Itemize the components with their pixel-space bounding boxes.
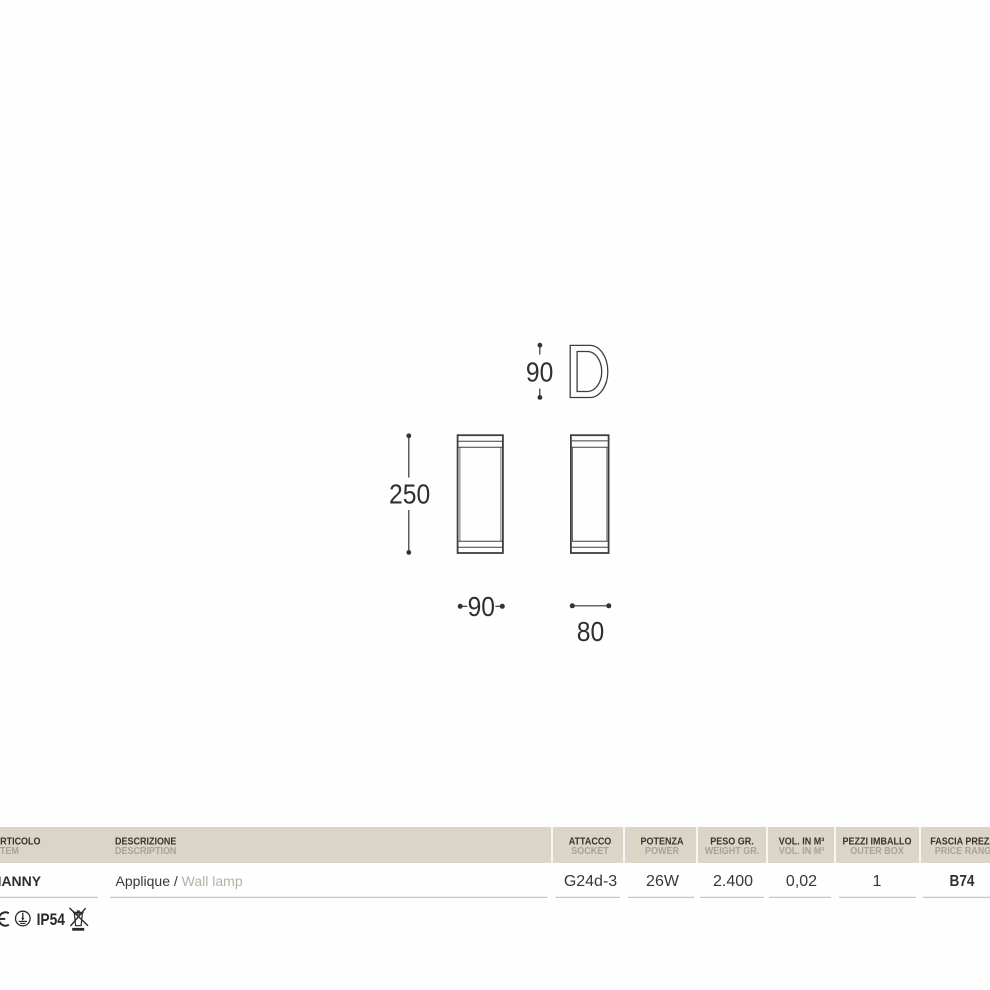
svg-text:Applique / Wall lamp: Applique / Wall lamp [116,873,243,889]
svg-text:VOL. IN M³: VOL. IN M³ [779,846,824,858]
svg-text:26W: 26W [646,873,680,890]
svg-text:OUTER BOX: OUTER BOX [850,846,904,858]
svg-text:0,02: 0,02 [786,873,817,890]
svg-text:SOCKET: SOCKET [571,846,609,858]
svg-text:2.400: 2.400 [713,873,753,890]
svg-text:ITEM: ITEM [0,846,19,858]
svg-text:SHANNY: SHANNY [0,873,42,889]
svg-text:G24d-3: G24d-3 [564,873,617,890]
svg-text:IP54: IP54 [37,911,66,929]
svg-text:B74: B74 [950,873,976,890]
svg-text:DESCRIPTION: DESCRIPTION [115,846,177,858]
svg-text:POWER: POWER [645,846,679,858]
svg-text:WEIGHT GR.: WEIGHT GR. [705,846,759,858]
svg-text:PRICE RANGE: PRICE RANGE [935,846,990,858]
svg-text:1: 1 [873,873,882,890]
